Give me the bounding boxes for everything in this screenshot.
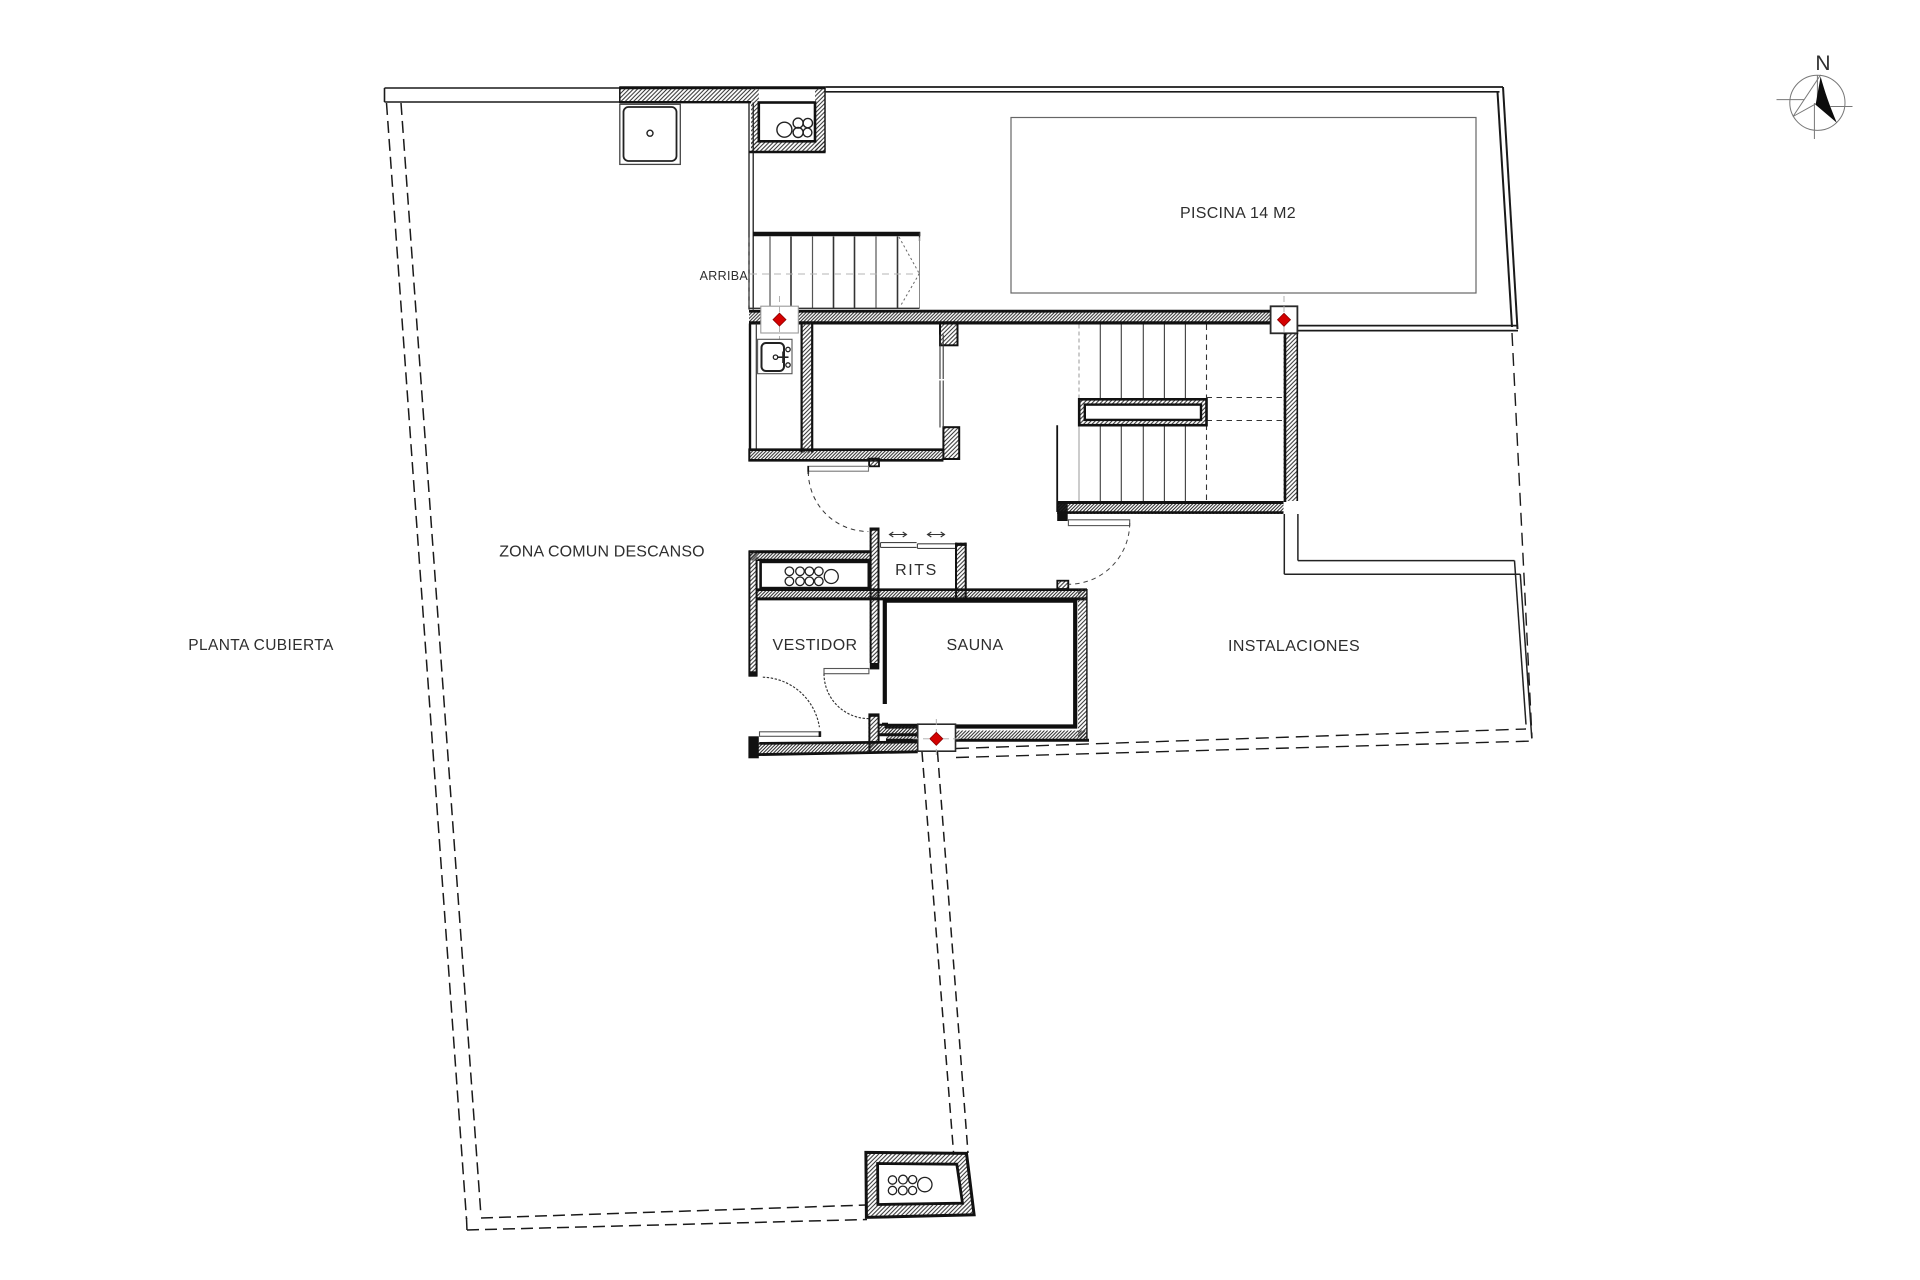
svg-text:VESTIDOR: VESTIDOR [773,637,858,654]
svg-text:PISCINA 14 M2: PISCINA 14 M2 [1180,205,1296,222]
svg-text:INSTALACIONES: INSTALACIONES [1228,638,1360,655]
svg-text:ARRIBA: ARRIBA [700,269,749,283]
svg-text:N: N [1815,52,1830,75]
svg-text:RITS: RITS [895,562,938,579]
svg-text:PLANTA CUBIERTA: PLANTA CUBIERTA [188,637,334,654]
svg-text:SAUNA: SAUNA [946,637,1003,654]
svg-text:ZONA COMUN DESCANSO: ZONA COMUN DESCANSO [499,544,705,561]
